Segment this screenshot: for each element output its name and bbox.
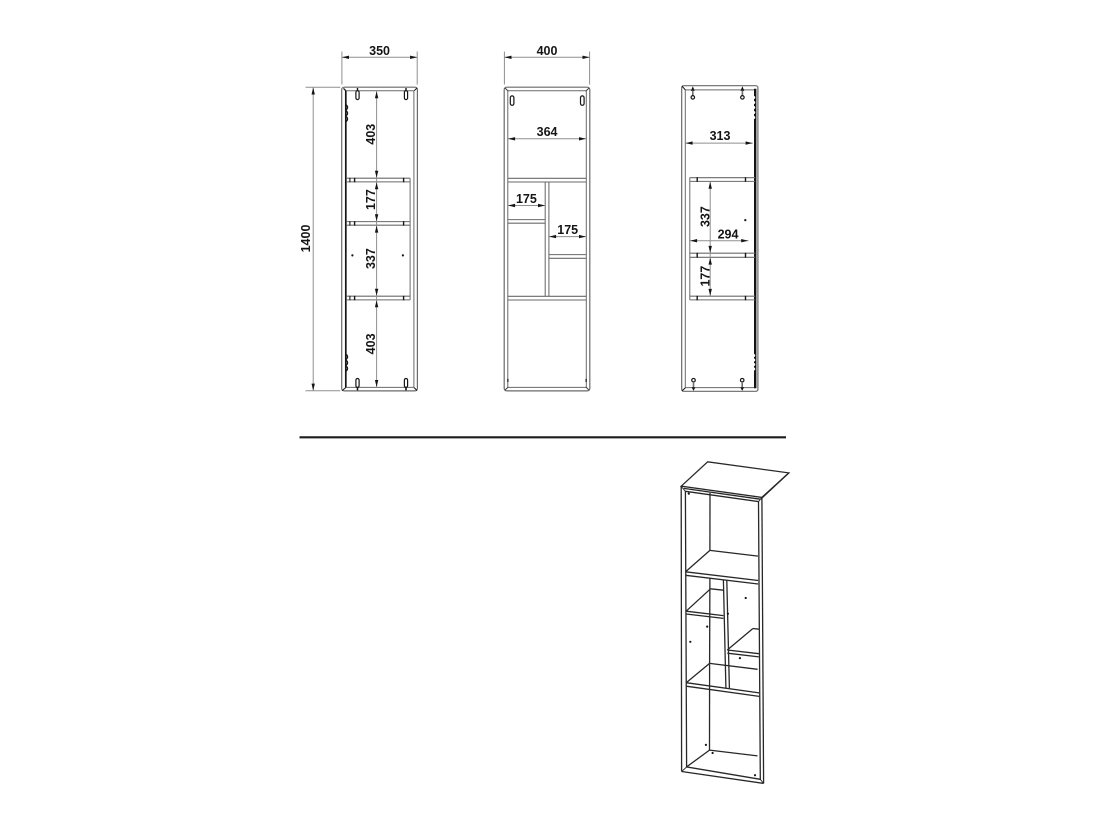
svg-text:175: 175 — [516, 192, 537, 206]
svg-text:403: 403 — [364, 333, 378, 354]
svg-text:175: 175 — [557, 223, 578, 237]
svg-text:350: 350 — [369, 44, 390, 58]
svg-text:400: 400 — [537, 44, 558, 58]
svg-text:364: 364 — [537, 125, 558, 139]
svg-text:1400: 1400 — [299, 225, 313, 253]
svg-text:313: 313 — [710, 129, 731, 143]
svg-text:177: 177 — [364, 189, 378, 210]
svg-text:177: 177 — [699, 266, 713, 287]
svg-text:294: 294 — [718, 228, 739, 242]
svg-text:337: 337 — [699, 206, 713, 227]
svg-text:337: 337 — [364, 248, 378, 269]
svg-text:403: 403 — [364, 124, 378, 145]
